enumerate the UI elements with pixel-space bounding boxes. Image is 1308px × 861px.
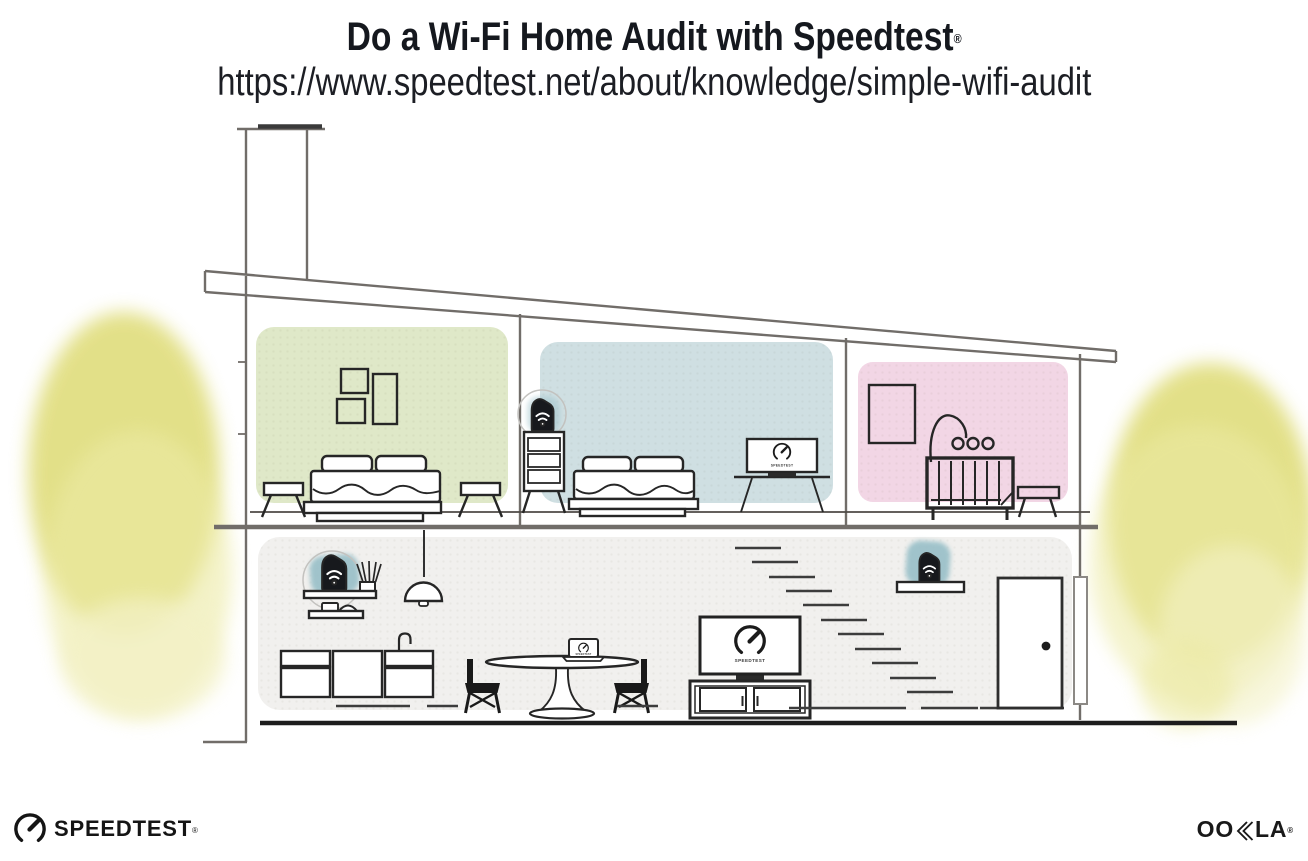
kitchen-cabinets [281,634,433,698]
dresser [523,432,565,513]
front-door [998,578,1062,708]
laptop-label: SPEEDTEST [576,653,592,656]
wifi-router-icon [532,399,554,431]
wall-frames [337,369,397,424]
living-area: SPEEDTEST SPE [281,530,1087,719]
bed [304,456,441,521]
wifi-router-icon [919,553,939,582]
chimney [237,127,325,282]
doorknob [1042,642,1051,651]
bed [569,457,698,516]
ookla-wordmark: OO [1197,816,1234,843]
door-sidelight [1074,577,1087,704]
router-shelf [303,551,381,618]
faucet [399,634,411,652]
ookla-wordmark-2: LA [1255,816,1287,843]
chair-left [465,659,500,713]
pink-nursery [869,385,1059,520]
television: SPEEDTEST [700,617,800,680]
utensil-crock [357,561,381,591]
house-line-art: SPEEDTEST [0,0,1308,861]
tv-label: SPEEDTEST [735,658,766,663]
crib [927,458,1013,520]
laptop: SPEEDTEST [563,639,604,661]
registered-mark: ® [1287,826,1294,835]
crib-mobile [930,415,993,462]
cup [322,603,338,611]
pendant-lamp [405,530,442,606]
monitor-label: SPEEDTEST [771,464,794,468]
speedtest-gauge-icon [14,812,46,846]
infographic-canvas: Do a Wi-Fi Home Audit with Speedtest® ht… [0,0,1308,861]
monitor-table: SPEEDTEST [734,439,830,512]
speedtest-wordmark: SPEEDTEST [54,816,192,842]
ookla-logo: OO LA® [1197,816,1294,843]
registered-mark: ® [192,826,198,835]
roof [205,271,1116,362]
hallway-extender-shelf [897,540,964,592]
wifi-router-icon [322,555,346,590]
ookla-k-icon [1235,821,1254,841]
wall-frame [869,385,915,443]
speedtest-logo: SPEEDTEST® [14,812,198,846]
green-bedroom [262,369,502,521]
tv-stand [690,681,810,718]
blue-bedroom: SPEEDTEST [518,390,830,516]
